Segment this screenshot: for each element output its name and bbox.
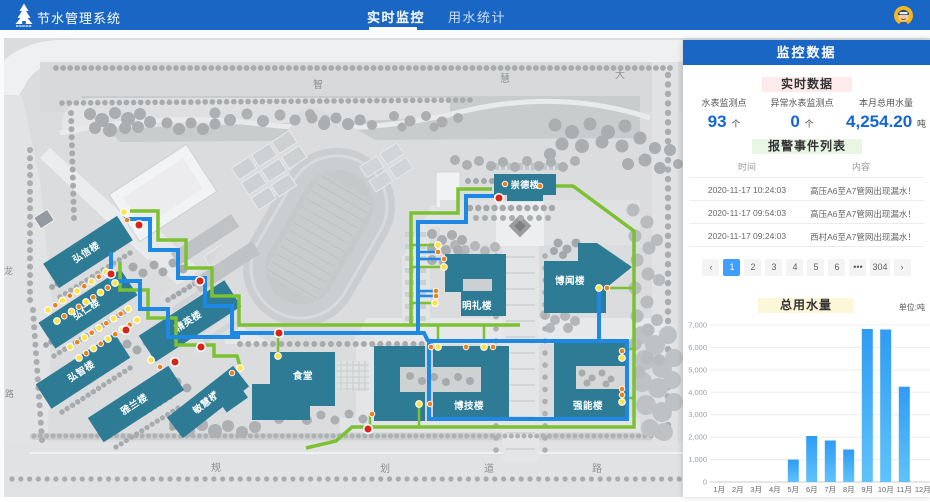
svg-text:大: 大 [615, 68, 625, 81]
svg-text:2,000: 2,000 [688, 433, 707, 442]
svg-text:5,000: 5,000 [688, 365, 707, 374]
svg-text:路: 路 [5, 388, 14, 399]
svg-text:强能楼: 强能楼 [573, 400, 603, 412]
svg-text:博闻楼: 博闻楼 [555, 275, 585, 287]
svg-text:0: 0 [703, 478, 707, 487]
svg-text:5月: 5月 [787, 485, 799, 494]
svg-text:12月: 12月 [915, 485, 930, 494]
svg-text:3月: 3月 [750, 485, 762, 494]
svg-text:8月: 8月 [843, 485, 855, 494]
svg-text:7月: 7月 [824, 485, 836, 494]
svg-text:9月: 9月 [861, 485, 873, 494]
svg-text:6月: 6月 [806, 485, 818, 494]
svg-text:博技楼: 博技楼 [454, 400, 484, 412]
svg-text:慧: 慧 [500, 72, 510, 85]
svg-text:规: 规 [211, 461, 221, 474]
svg-text:7,000: 7,000 [688, 321, 707, 330]
svg-text:划: 划 [380, 462, 390, 475]
svg-text:道: 道 [484, 462, 494, 475]
svg-text:3,000: 3,000 [688, 410, 707, 419]
svg-text:智: 智 [313, 78, 323, 91]
svg-text:2月: 2月 [732, 485, 744, 494]
svg-text:11月: 11月 [897, 485, 912, 494]
svg-text:1月: 1月 [713, 485, 725, 494]
svg-text:路: 路 [592, 462, 602, 475]
svg-text:龙: 龙 [4, 265, 13, 276]
svg-text:食堂: 食堂 [292, 370, 313, 382]
svg-text:10月: 10月 [878, 485, 894, 494]
svg-text:明礼楼: 明礼楼 [462, 300, 492, 312]
svg-text:崇德楼: 崇德楼 [511, 179, 540, 190]
svg-text:6,000: 6,000 [688, 343, 707, 352]
svg-text:4月: 4月 [769, 485, 781, 494]
svg-text:1,000: 1,000 [688, 455, 707, 464]
svg-text:4,000: 4,000 [688, 388, 707, 397]
